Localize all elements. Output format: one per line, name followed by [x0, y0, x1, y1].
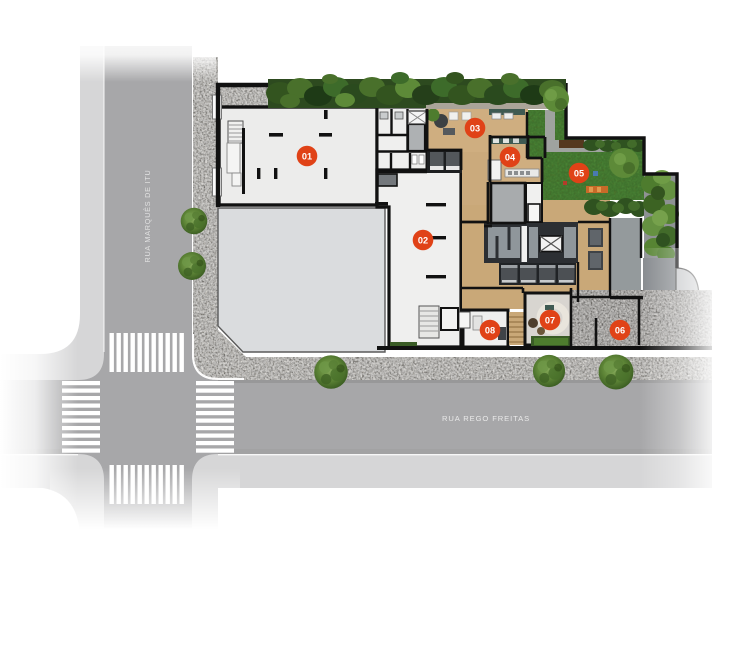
- svg-text:06: 06: [615, 325, 625, 335]
- svg-text:01: 01: [302, 151, 312, 161]
- svg-text:08: 08: [485, 325, 495, 335]
- svg-text:RUA MARQUÊS DE ITU: RUA MARQUÊS DE ITU: [143, 169, 152, 262]
- svg-text:04: 04: [505, 152, 516, 162]
- svg-text:RUA REGO FREITAS: RUA REGO FREITAS: [442, 414, 530, 423]
- svg-text:07: 07: [545, 315, 555, 325]
- svg-text:05: 05: [574, 168, 584, 178]
- svg-text:03: 03: [470, 123, 480, 133]
- svg-text:02: 02: [418, 235, 428, 245]
